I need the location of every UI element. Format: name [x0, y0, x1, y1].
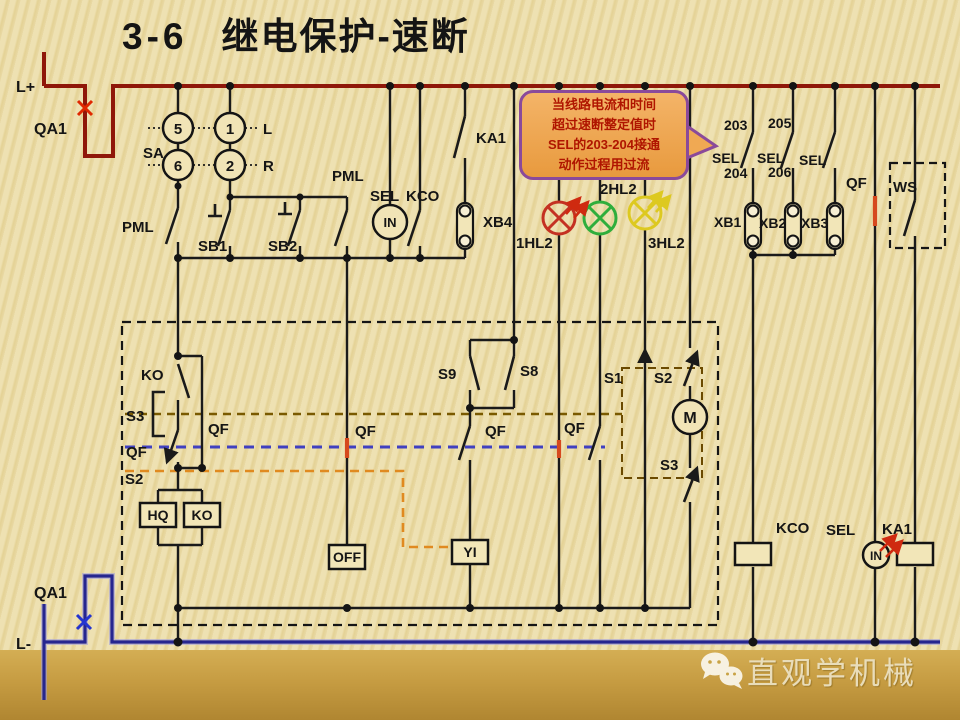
title-number: 3-6	[122, 16, 187, 57]
callout-line-3: SEL的203-204接通	[548, 135, 660, 155]
label-in-left: IN	[384, 215, 397, 230]
kco-coil	[735, 543, 771, 565]
label-ka1-coil: KA1	[882, 521, 912, 538]
label-qf-branch: QF	[208, 421, 229, 438]
label-pml-mid: PML	[332, 168, 364, 185]
label-sel-coil: SEL	[826, 522, 855, 539]
label-l-minus: L-	[16, 636, 31, 653]
label-s2-left: S2	[125, 471, 143, 488]
label-m-motor: M	[683, 410, 696, 427]
label-qf-600: QF	[564, 420, 585, 437]
lamp-1HL2	[543, 202, 575, 234]
label-xb1: XB1	[714, 214, 741, 230]
label-s8: S8	[520, 363, 538, 380]
label-ko-contact: KO	[141, 367, 164, 384]
label-pml-left: PML	[122, 219, 154, 236]
label-kco-coil: KCO	[776, 520, 810, 537]
label-sa-6: 6	[174, 158, 182, 175]
label-qa1-top: QA1	[34, 121, 67, 138]
watermark-text: 直观学机械	[747, 648, 917, 693]
coils-and-boxes	[140, 503, 933, 569]
label-hl2: 2HL2	[600, 181, 637, 198]
sa-selector-switch	[148, 113, 258, 180]
page-title: 3-6继电保护-速断	[122, 6, 470, 60]
label-s1: S1	[604, 370, 622, 387]
label-sb1: SB1	[198, 238, 227, 255]
label-n205: 205	[768, 115, 792, 131]
ws-dashed-box	[890, 163, 945, 248]
label-xb2: XB2	[759, 215, 786, 231]
label-n203: 203	[724, 117, 748, 133]
label-qa1-bottom: QA1	[34, 585, 67, 602]
label-hl3: 3HL2	[648, 235, 685, 252]
label-hl1: 1HL2	[516, 235, 553, 252]
label-sa-l: L	[263, 121, 272, 138]
label-qf-left: QF	[126, 444, 147, 461]
label-qf-347: QF	[355, 423, 376, 440]
label-hq-box: HQ	[148, 507, 169, 523]
label-sa-r: R	[263, 158, 274, 175]
label-yi-box: YI	[463, 544, 476, 560]
title-text: 继电保护-速断	[221, 16, 469, 57]
label-qf-top-right: QF	[846, 175, 867, 192]
wechat-icon	[695, 649, 747, 693]
label-sa: SA	[143, 145, 164, 162]
label-ko-box: KO	[192, 507, 213, 523]
slide: L+QA1SA5162LRPMLSB1SB2PMLSELKCOINKA1XB41…	[0, 0, 960, 720]
label-s3-left: S3	[126, 408, 144, 425]
label-sb2: SB2	[268, 238, 297, 255]
label-kco-top: KCO	[406, 188, 440, 205]
label-l-plus: L+	[16, 79, 35, 96]
label-n204: 204	[724, 165, 748, 181]
label-sel-top: SEL	[370, 188, 399, 205]
label-sel-3: SEL	[799, 152, 827, 168]
relay-protection-schematic: L+QA1SA5162LRPMLSB1SB2PMLSELKCOINKA1XB41…	[0, 0, 960, 720]
label-qf-470: QF	[485, 423, 506, 440]
label-s3-right: S3	[660, 457, 678, 474]
label-off-box: OFF	[333, 549, 361, 565]
device-labels: L+QA1SA5162LRPMLSB1SB2PMLSELKCOINKA1XB41…	[16, 79, 917, 653]
label-n206: 206	[768, 164, 792, 180]
callout-line-2: 超过速断整定值时	[552, 115, 656, 135]
watermark: 直观学机械	[695, 648, 917, 693]
callout-line-4: 动作过程用过流	[558, 155, 649, 175]
label-ka1-top: KA1	[476, 130, 506, 147]
label-ws: WS	[893, 179, 917, 196]
label-s2-right: S2	[654, 370, 672, 387]
label-sa-2: 2	[226, 158, 234, 175]
label-in-right: IN	[870, 549, 882, 563]
label-sa-5: 5	[174, 121, 182, 138]
label-sa-1: 1	[226, 121, 234, 138]
ka1-coil	[897, 543, 933, 565]
lamp-3HL2	[629, 197, 661, 229]
callout-line-1: 当线路电流和时间	[552, 95, 656, 115]
label-xb3: XB3	[801, 215, 828, 231]
callout-bubble: 当线路电流和时间 超过速断整定值时 SEL的203-204接通 动作过程用过流	[519, 90, 689, 180]
label-xb4: XB4	[483, 214, 513, 231]
lamp-2HL2	[584, 202, 616, 234]
label-sel-1: SEL	[712, 150, 740, 166]
label-s9: S9	[438, 366, 456, 383]
